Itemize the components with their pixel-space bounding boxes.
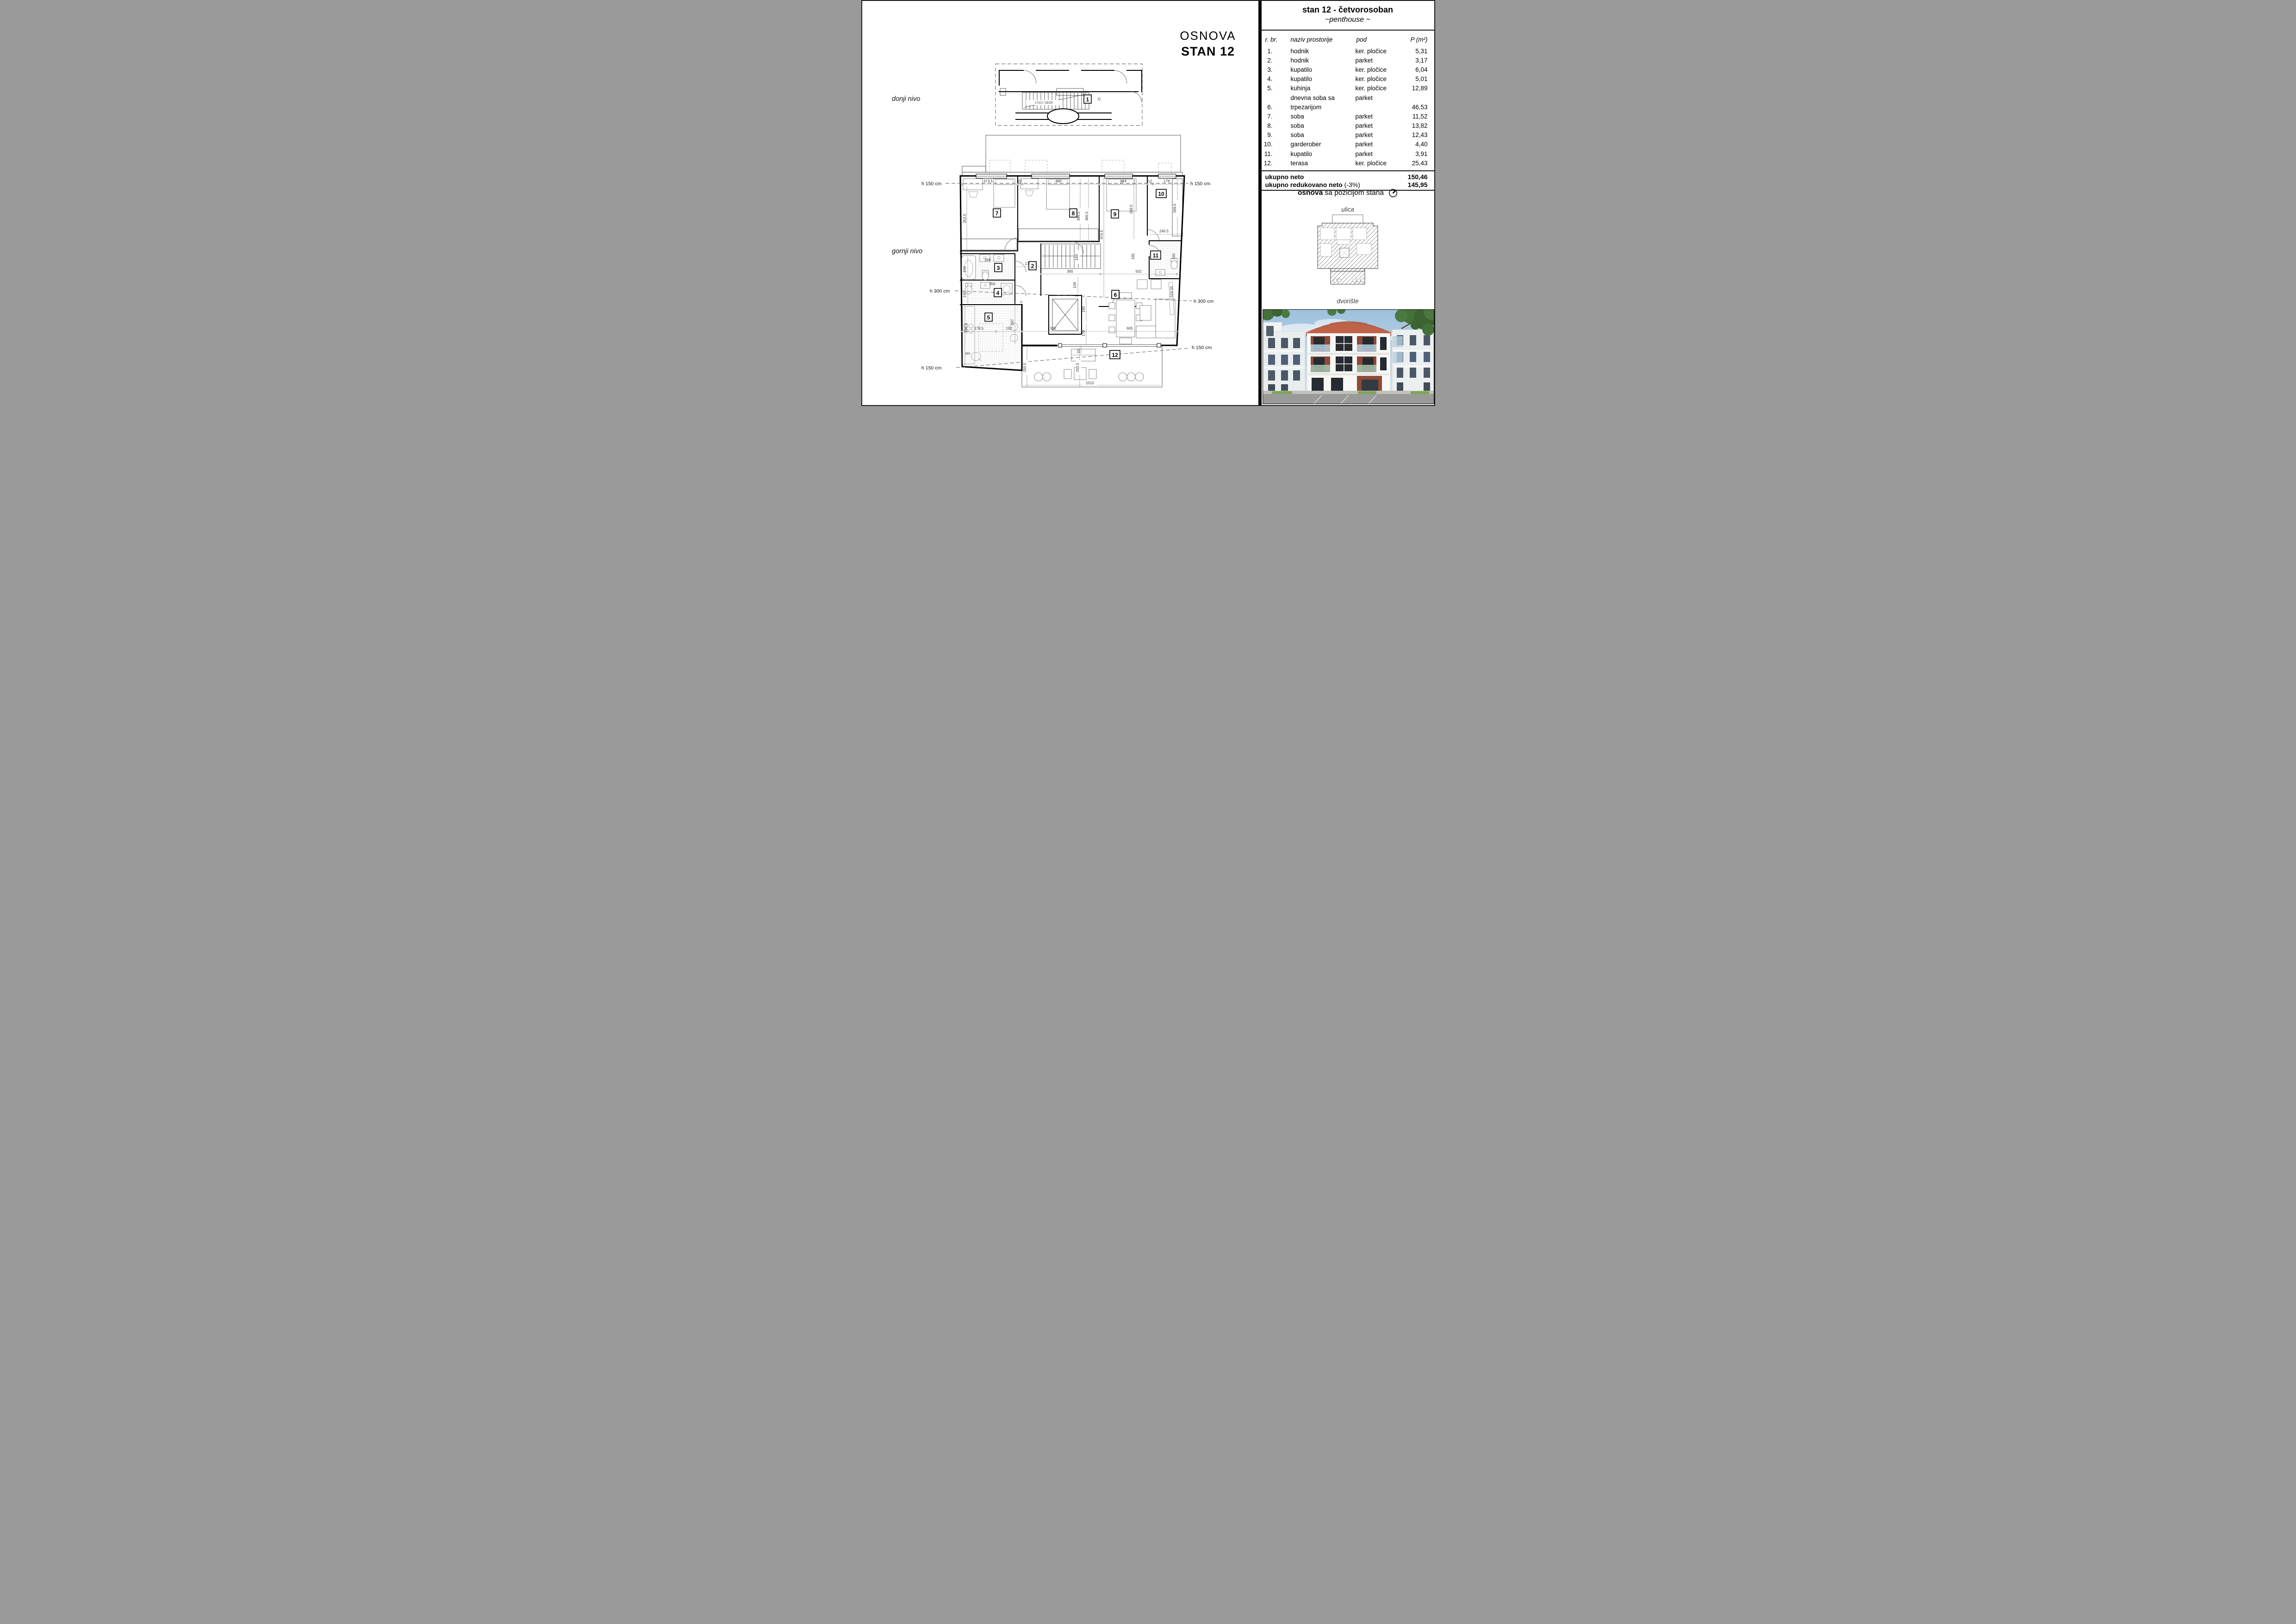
- floor-middle: [1311, 356, 1387, 372]
- svg-text:8: 8: [1071, 210, 1075, 217]
- table-row: 2.hodnikparket3,17: [1262, 56, 1434, 65]
- svg-text:365: 365: [1067, 269, 1073, 274]
- svg-text:3: 3: [996, 265, 1000, 271]
- roof-hatch: [962, 135, 1182, 176]
- svg-text:502: 502: [1135, 269, 1142, 274]
- apartment-subtitle: ~penthouse ~: [1262, 16, 1434, 24]
- svg-text:192: 192: [1006, 326, 1012, 331]
- col-header-name: naziv prostorije: [1291, 36, 1333, 43]
- svg-text:405.5: 405.5: [964, 323, 968, 332]
- north-compass-icon: [1388, 188, 1398, 198]
- svg-text:178: 178: [1164, 179, 1170, 183]
- svg-text:7: 7: [995, 210, 998, 217]
- room-label-10: 10: [1156, 189, 1166, 198]
- yard-label: dvorište: [1262, 298, 1434, 305]
- svg-text:11: 11: [1152, 252, 1158, 259]
- site-plan: [1308, 213, 1387, 295]
- building-photo: [1263, 309, 1434, 404]
- svg-text:1: 1: [1086, 96, 1089, 103]
- svg-text:160: 160: [1172, 253, 1176, 260]
- table-row: 4.kupatiloker. pločice5,01: [1262, 75, 1434, 84]
- room-table: 1.hodnikker. pločice5,31 2.hodnikparket3…: [1262, 46, 1434, 168]
- svg-text:180: 180: [1082, 306, 1086, 312]
- room-label-1: 1: [1084, 95, 1091, 103]
- lower-level-plan: 17x17.18/29 1: [996, 64, 1142, 125]
- rule-totals-top: [1262, 170, 1434, 171]
- svg-text:353.5: 353.5: [963, 213, 967, 223]
- svg-text:2: 2: [1031, 263, 1034, 269]
- svg-text:344: 344: [1120, 179, 1126, 183]
- total-neto: ukupno neto150,46: [1265, 173, 1428, 181]
- svg-text:246.5: 246.5: [1159, 229, 1169, 233]
- stairs-upper: [1041, 244, 1101, 269]
- info-panel: stan 12 - četvorosoban ~penthouse ~ r. b…: [1262, 1, 1434, 405]
- left-building: [1263, 322, 1305, 396]
- upper-level-plan: h 150 cm h 150 cm h 300 cm h 300 cm h 15…: [921, 135, 1213, 387]
- living-furniture: [1109, 280, 1175, 344]
- drawing-sheet: .wall{stroke:#000;stroke-width:3;fill:no…: [861, 0, 1435, 406]
- table-row: 5.kuhinjaker. pločice12,89: [1262, 84, 1434, 93]
- svg-text:474.5: 474.5: [1100, 230, 1104, 239]
- svg-text:12: 12: [1148, 179, 1152, 183]
- plan-title: OSNOVA: [1180, 29, 1236, 43]
- table-row: 12.terasaker. pločice25,43: [1262, 158, 1434, 168]
- staircase: [1016, 93, 1111, 124]
- room-label-12: 12: [1110, 350, 1120, 359]
- room-label-2: 2: [1029, 262, 1036, 270]
- h150-label-top-left: h 150 cm: [921, 181, 941, 187]
- svg-text:386: 386: [1050, 326, 1056, 331]
- panel-divider: [1258, 1, 1262, 405]
- svg-text:250.5: 250.5: [1076, 362, 1080, 372]
- svg-text:250.5: 250.5: [1023, 362, 1027, 372]
- stair-dimension-label: 17x17.18/29: [1034, 101, 1052, 105]
- h300-label-left: h 300 cm: [930, 288, 950, 294]
- svg-text:524.55: 524.55: [1170, 286, 1174, 297]
- col-header-pod: pod: [1356, 36, 1367, 43]
- floor-plan-drawing: .wall{stroke:#000;stroke-width:3;fill:no…: [862, 1, 1258, 405]
- svg-text:350: 350: [989, 282, 996, 286]
- table-row: 7.sobaparket11,52: [1262, 112, 1434, 121]
- table-row: 8.sobaparket13,82: [1262, 121, 1434, 131]
- site-plan-title: osnova sa pozicijom stana: [1262, 188, 1434, 198]
- svg-text:33: 33: [1076, 349, 1081, 353]
- svg-text:184: 184: [1075, 254, 1079, 261]
- level-label-upper: gornji nivo: [892, 248, 922, 255]
- svg-text:605: 605: [1126, 326, 1133, 331]
- svg-text:373.5: 373.5: [983, 179, 993, 183]
- svg-text:F: F: [1020, 301, 1022, 304]
- table-row: 9.sobaparket12,43: [1262, 131, 1434, 140]
- svg-text:169: 169: [963, 266, 967, 273]
- plan-subtitle: STAN 12: [1181, 44, 1234, 58]
- table-row: 3.kupatiloker. pločice6,04: [1262, 65, 1434, 74]
- svg-text:185: 185: [1131, 253, 1135, 260]
- svg-text:9: 9: [1113, 211, 1116, 218]
- svg-text:6: 6: [1114, 292, 1117, 298]
- svg-text:10: 10: [1158, 191, 1164, 197]
- room-label-5: 5: [985, 313, 992, 321]
- h300-label-right: h 300 cm: [1194, 299, 1213, 304]
- terrace-furniture: [1034, 349, 1144, 381]
- svg-text:366.5: 366.5: [1085, 211, 1089, 221]
- room-label-6: 6: [1112, 290, 1119, 299]
- svg-text:170: 170: [1082, 330, 1086, 337]
- total-reduced: ukupno redukovano neto (-3%) 145,95: [1265, 181, 1428, 188]
- rule-top: [1262, 30, 1434, 31]
- table-row: 6.trpezarijom46,53: [1262, 102, 1434, 112]
- room-label-4: 4: [994, 288, 1002, 297]
- svg-text:20: 20: [1018, 179, 1022, 183]
- room-label-8: 8: [1070, 209, 1077, 217]
- svg-text:108: 108: [1073, 282, 1077, 288]
- right-building: [1392, 330, 1434, 396]
- room-label-9: 9: [1111, 210, 1119, 218]
- svg-text:MS: MS: [965, 352, 970, 356]
- svg-text:5: 5: [987, 314, 990, 321]
- h150-label-top-right: h 150 cm: [1190, 181, 1210, 187]
- svg-text:12: 12: [1112, 352, 1118, 358]
- col-header-num: r. br.: [1265, 36, 1278, 43]
- svg-text:297: 297: [1010, 319, 1014, 325]
- svg-text:178.5: 178.5: [974, 326, 983, 331]
- street-label: ulica: [1262, 206, 1434, 213]
- room-label-11: 11: [1151, 251, 1161, 259]
- center-building: [1306, 322, 1391, 397]
- svg-text:4: 4: [996, 290, 999, 296]
- table-row: 11.kupatiloparket3,91: [1262, 149, 1434, 158]
- h150-label-bottom-right: h 150 cm: [1192, 345, 1212, 350]
- level-label-lower: donji nivo: [892, 95, 920, 103]
- table-row: 1.hodnikker. pločice5,31: [1262, 46, 1434, 56]
- table-row: 10.garderoberparket4,40: [1262, 140, 1434, 149]
- apartment-title: stan 12 - četvorosoban: [1262, 5, 1434, 15]
- room-label-3: 3: [995, 263, 1002, 272]
- h150-label-bottom-left: h 150 cm: [921, 365, 941, 371]
- svg-text:480: 480: [1055, 179, 1062, 183]
- svg-text:289.5: 289.5: [1129, 204, 1133, 214]
- floor-top: [1311, 336, 1387, 352]
- col-header-area: P (m²): [1411, 36, 1428, 43]
- road: [1263, 391, 1434, 404]
- svg-text:349: 349: [984, 258, 991, 262]
- room-label-7: 7: [993, 209, 1001, 217]
- svg-text:1015: 1015: [1086, 381, 1094, 385]
- table-row: dnevna soba saparket: [1262, 93, 1434, 102]
- svg-text:140: 140: [963, 291, 967, 298]
- svg-text:289.5: 289.5: [1173, 203, 1177, 213]
